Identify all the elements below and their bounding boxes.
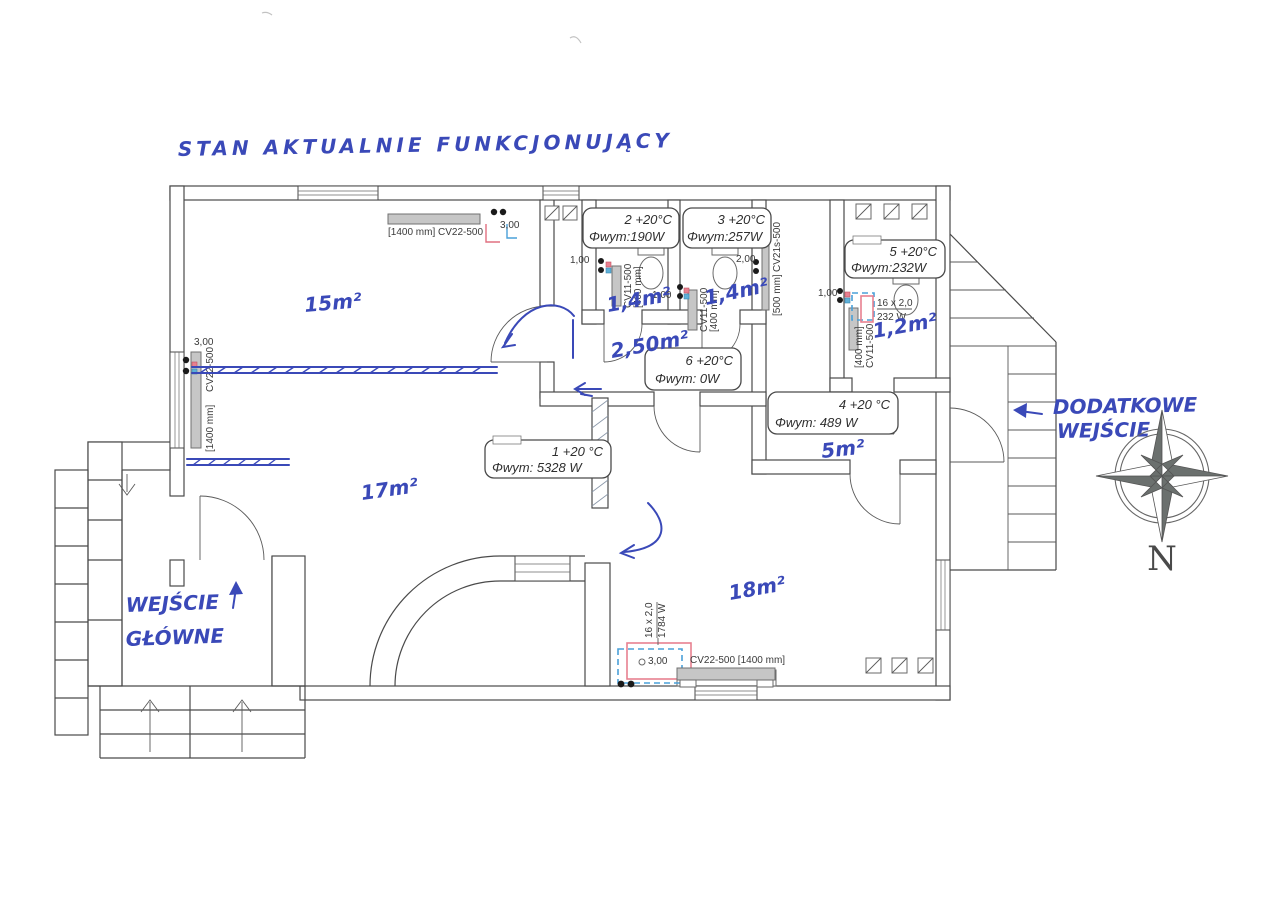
exterior-stairs xyxy=(950,234,1056,570)
side-entrance-label-2: WEJŚCIE xyxy=(1057,417,1151,443)
scanned-floor-plan-page: [1400 mm] CV22-500 3,00 CV22-500 [1400 m… xyxy=(0,0,1280,904)
dim-top: 3,00 xyxy=(500,220,520,231)
room-box-5: 5 +20°C Φwym:232W xyxy=(845,236,945,278)
room-2-temp: 2 +20°C xyxy=(624,212,673,227)
door-hall4-room18 xyxy=(850,474,900,524)
radiator-left: CV22-500 [1400 mm] 3,00 xyxy=(183,337,216,452)
room-box-3: 3 +20°C Φwym:257W xyxy=(683,208,771,248)
main-entrance-label-1: WEJŚCIE xyxy=(125,590,219,617)
radiator-bottom: 16 x 2,0 1784 W 3,00 CV22-500 [1400 mm] xyxy=(618,602,786,687)
area-bottomright: 18m² xyxy=(727,571,788,605)
blue-curved-arrow-opening xyxy=(621,503,661,558)
door-main-room xyxy=(491,306,547,362)
door-hall6 xyxy=(654,406,700,452)
loop-large-size: 16 x 2,0 xyxy=(644,602,655,638)
blue-arrow-side-entrance xyxy=(1013,403,1042,418)
room-5-power: Φwym:232W xyxy=(851,260,928,275)
area-topleft: 15m² xyxy=(303,288,363,317)
room-1-temp: 1 +20 °C xyxy=(552,444,604,459)
radiator-left-size: [1400 mm] xyxy=(205,405,216,452)
room-box-2: 2 +20°C Φwym:190W xyxy=(583,208,679,248)
radiator-bottom-label: CV22-500 [1400 mm] xyxy=(690,655,785,666)
dim-bottom: 3,00 xyxy=(648,656,668,667)
room-3-power: Φwym:257W xyxy=(687,229,764,244)
loop-small-size: 16 x 2,0 xyxy=(877,298,913,309)
radiator-corridor-size: [500 mm] xyxy=(772,274,783,316)
blue-arrow-main-entrance xyxy=(229,581,243,608)
stair-arrow-up-right xyxy=(233,700,251,752)
room-6-temp: 6 +20°C xyxy=(686,353,734,368)
door-main-entrance xyxy=(200,496,264,560)
room-5-temp: 5 +20°C xyxy=(890,244,938,259)
room-box-4: 4 +20 °C Φwym: 489 W xyxy=(768,392,898,434)
door-side-exit xyxy=(950,408,1004,462)
room-box-1: 1 +20 °C Φwym: 5328 W xyxy=(485,436,611,478)
dim-corridor: 2,00 xyxy=(736,254,756,265)
dim-wc2: 1,00 xyxy=(570,255,590,266)
floor-plan-drawing: [1400 mm] CV22-500 3,00 CV22-500 [1400 m… xyxy=(0,0,1280,904)
area-bottomleft: 17m² xyxy=(359,473,419,505)
room-1-power: Φwym: 5328 W xyxy=(492,460,583,475)
side-entrance-label-1: DODATKOWE xyxy=(1053,392,1198,419)
room-6-power: Φwym: 0W xyxy=(655,371,721,386)
room-3-temp: 3 +20°C xyxy=(718,212,766,227)
dim-left: 3,00 xyxy=(194,337,214,348)
blue-hatch-long xyxy=(192,367,497,373)
main-entrance-label-2: GŁÓWNE xyxy=(125,624,224,651)
radiator-top: [1400 mm] CV22-500 3,00 xyxy=(388,209,520,242)
pencil-artifacts xyxy=(262,12,581,43)
radiator-top-label: [1400 mm] CV22-500 xyxy=(388,227,483,238)
radiator-wc5-size: [400 mm] xyxy=(854,326,865,368)
dim-wc5: 1,00 xyxy=(818,288,838,299)
blue-hatch-short xyxy=(187,459,289,465)
room-4-power: Φwym: 489 W xyxy=(775,415,859,430)
compass-north-letter: N xyxy=(1147,539,1177,579)
radiator-corridor-model: CV21s-500 xyxy=(772,222,783,272)
loop-large-power: 1784 W xyxy=(657,603,668,638)
room-2-power: Φwym:190W xyxy=(589,229,666,244)
blue-curved-arrow-door xyxy=(503,305,574,358)
page-title: STAN AKTUALNIE FUNKCJONUJĄCY xyxy=(178,128,673,161)
area-hall4: 5m² xyxy=(820,435,866,463)
room-4-temp: 4 +20 °C xyxy=(839,397,891,412)
stair-arrow-up-left xyxy=(141,700,159,752)
